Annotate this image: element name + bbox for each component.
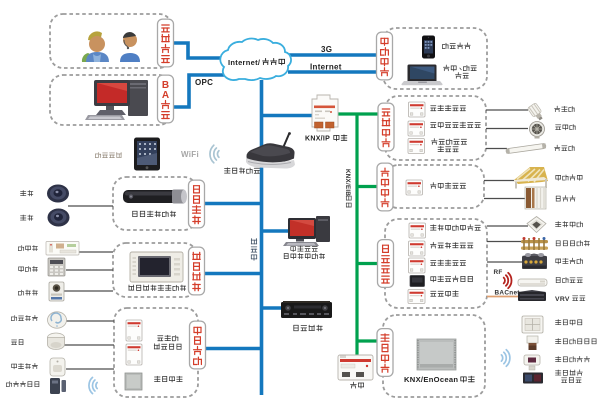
svg-text:VRV: VRV <box>555 296 570 303</box>
svg-text:WiFi: WiFi <box>181 150 199 159</box>
svg-text:OPC: OPC <box>195 78 213 87</box>
svg-text:Internet: Internet <box>310 63 342 72</box>
svg-text:3G: 3G <box>321 45 332 54</box>
svg-text:A: A <box>162 90 169 101</box>
svg-text:KNX/IP: KNX/IP <box>305 136 330 143</box>
svg-text:RF: RF <box>494 269 503 276</box>
svg-text:KNX/EIB: KNX/EIB <box>344 169 351 196</box>
svg-text:BACnet: BACnet <box>495 290 521 297</box>
svg-text:Internet/: Internet/ <box>228 58 261 67</box>
svg-text:KNX/EnOcean: KNX/EnOcean <box>404 375 458 384</box>
